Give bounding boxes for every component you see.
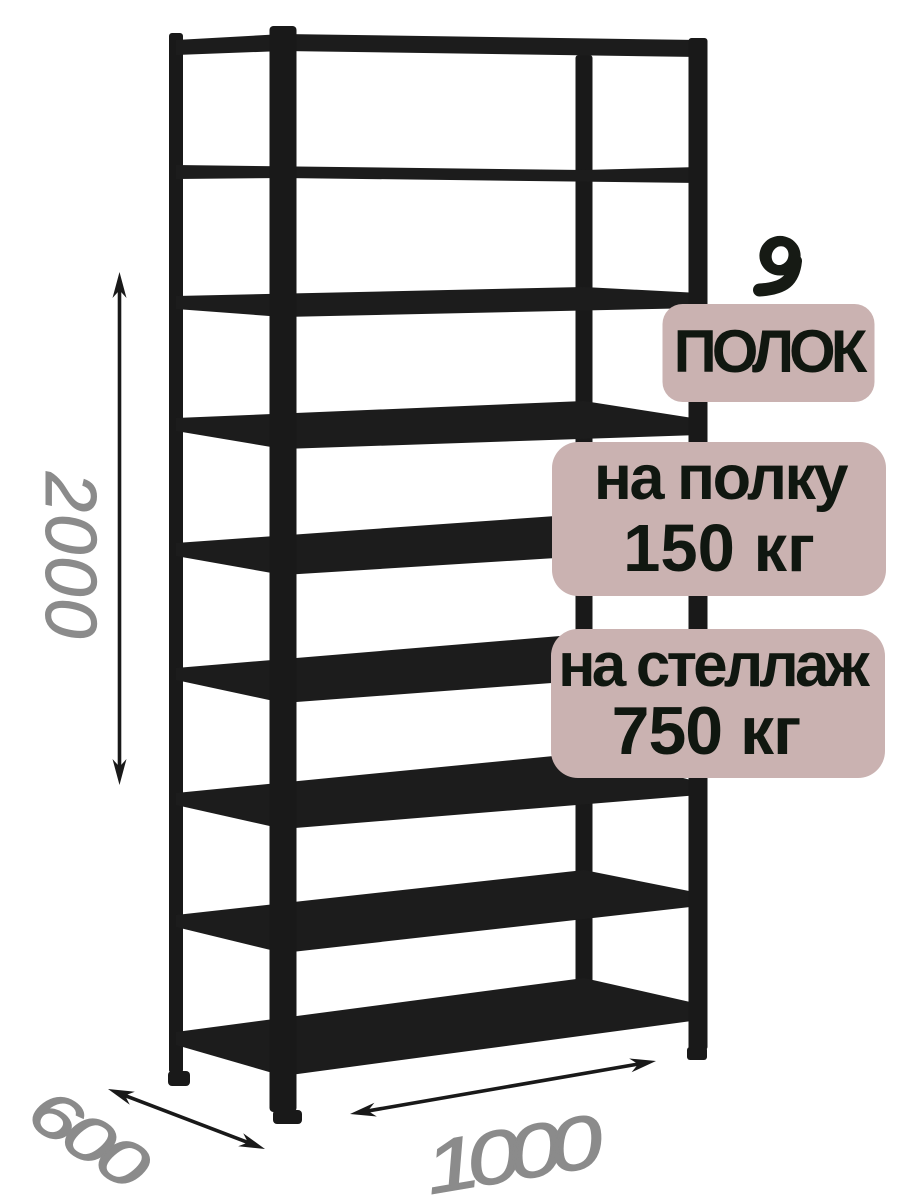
svg-text:750 кг: 750 кг [612, 693, 801, 769]
svg-text:на стеллаж: на стеллаж [558, 631, 871, 700]
svg-text:150 кг: 150 кг [623, 511, 815, 586]
svg-text:на полку: на полку [594, 443, 849, 513]
svg-text:ПОЛОК: ПОЛОК [674, 318, 868, 385]
svg-text:2000: 2000 [30, 471, 110, 640]
